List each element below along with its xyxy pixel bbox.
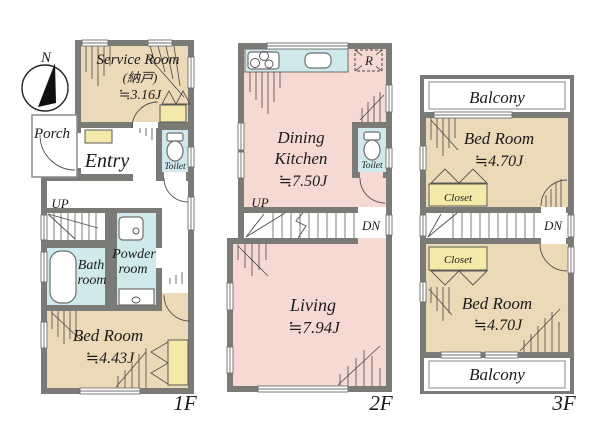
compass-north-label: N	[40, 50, 52, 66]
stairs-up-label: UP	[51, 196, 68, 211]
floor3-label: 3F	[551, 391, 576, 415]
toilet-tank-icon	[167, 133, 183, 141]
floor3-plan: Balcony Bed Room ≒4.70J Closet DN Closet…	[420, 75, 576, 415]
toilet-label: Toilet	[361, 161, 383, 171]
floor1-bedroom-door-gap	[162, 287, 188, 293]
living-label: Living	[289, 295, 336, 315]
floor1-entry-step-gap	[133, 174, 156, 181]
dining-kitchen-label: Dining	[276, 128, 324, 147]
bed-room-top-label: Bed Room	[464, 129, 534, 148]
toilet-bowl-icon	[167, 141, 183, 161]
service-room-label: Service Room	[97, 52, 180, 68]
floor1-porch-area	[32, 115, 77, 177]
balcony-bottom-label: Balcony	[469, 365, 525, 384]
floor-plan-page: N	[0, 0, 600, 447]
floor1-powder-door-gap	[156, 248, 162, 268]
porch-label: Porch	[33, 126, 70, 142]
floor1-toilet-door-gap	[164, 172, 186, 181]
service-room-label-jp: (納戸)	[123, 70, 158, 85]
floor3-stairs-area	[426, 213, 538, 238]
bath-room-label: Bath	[78, 258, 104, 273]
floor1-shoe-cabinet	[85, 130, 112, 143]
dining-kitchen-label2: Kitchen	[274, 149, 328, 168]
entry-label: Entry	[84, 150, 130, 172]
bathtub-icon	[50, 251, 76, 303]
bed-room-bottom-label: Bed Room	[462, 294, 532, 313]
bed-room-bottom-size: ≒4.70J	[474, 317, 523, 334]
powder-room-label: Powder	[111, 247, 156, 262]
powder-room-label2: room	[118, 262, 147, 277]
service-room-size: ≒3.16J	[119, 88, 162, 103]
balcony-top-label: Balcony	[469, 88, 525, 107]
closet-bottom-label: Closet	[444, 254, 473, 266]
floor1-closet	[168, 340, 188, 385]
floor1-label: 1F	[173, 391, 197, 415]
floor1-corridor-area	[162, 208, 188, 287]
toilet-tank-icon	[364, 132, 380, 140]
bath-room-label2: room	[77, 273, 106, 288]
bed-room-size: ≒4.43J	[86, 350, 135, 367]
toilet-label: Toilet	[164, 162, 186, 172]
floor-plan-drawing: N	[0, 0, 600, 447]
kitchen-sink-icon	[305, 53, 331, 68]
refrigerator-label: R	[364, 53, 373, 68]
floor2-plan: R	[227, 43, 393, 415]
stairs-down-label: DN	[543, 218, 563, 233]
stairs-up-label: UP	[251, 195, 268, 210]
floor3-bottom-door-gap	[541, 238, 566, 244]
washbasin-icon	[119, 217, 143, 240]
closet-top-label: Closet	[444, 192, 473, 204]
dining-kitchen-size: ≒7.50J	[279, 173, 328, 190]
bed-room-top-size: ≒4.70J	[475, 153, 524, 170]
floor1-service-door-gap	[133, 122, 158, 128]
bed-room-label: Bed Room	[73, 326, 143, 345]
floor1-storage-shelf	[160, 105, 186, 122]
floor2-toilet-door-gap	[360, 172, 383, 178]
compass: N	[22, 50, 68, 111]
living-size: ≒7.94J	[288, 318, 341, 337]
floor2-label: 2F	[369, 391, 393, 415]
stairs-down-label: DN	[361, 218, 381, 233]
toilet-bowl-icon	[364, 140, 380, 160]
floor3-top-door-gap	[541, 207, 566, 213]
